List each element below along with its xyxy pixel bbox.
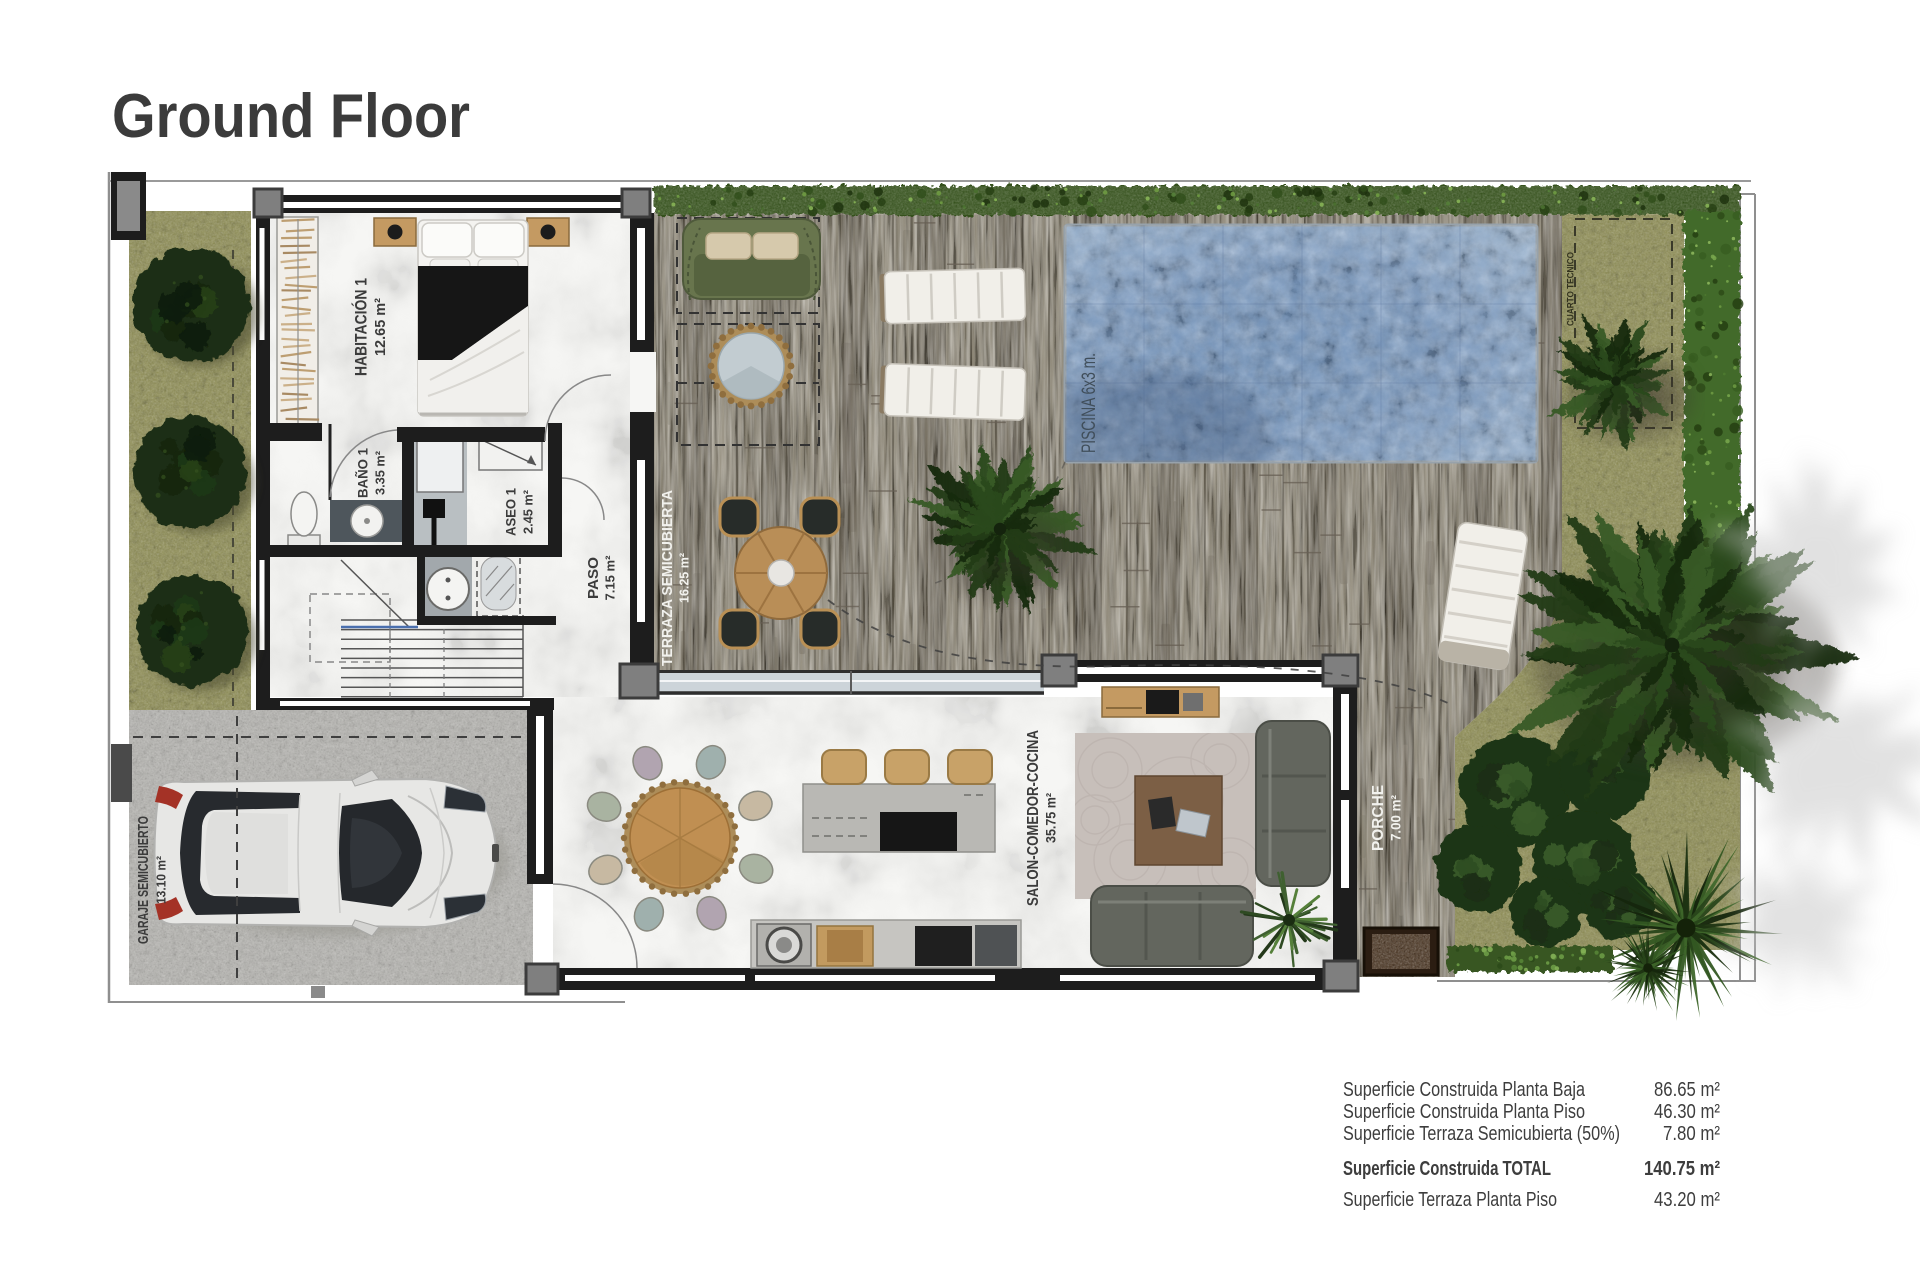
svg-text:PISCINA 6x3 m.: PISCINA 6x3 m.: [1079, 353, 1100, 453]
svg-text:12.65 m²: 12.65 m²: [372, 298, 389, 356]
svg-text:GARAJE SEMICUBIERTO: GARAJE SEMICUBIERTO: [136, 816, 152, 944]
svg-text:46.30 m²: 46.30 m²: [1654, 1101, 1720, 1123]
svg-text:7.15 m²: 7.15 m²: [602, 555, 617, 601]
svg-text:Ground Floor: Ground Floor: [112, 82, 470, 151]
svg-text:140.75 m²: 140.75 m²: [1644, 1158, 1720, 1180]
svg-text:SALON-COMEDOR-COCINA: SALON-COMEDOR-COCINA: [1025, 730, 1042, 906]
svg-text:Superficie Construida Planta P: Superficie Construida Planta Piso: [1343, 1101, 1585, 1123]
svg-text:Superficie Terraza Planta Piso: Superficie Terraza Planta Piso: [1343, 1189, 1557, 1211]
svg-text:43.20 m²: 43.20 m²: [1654, 1189, 1720, 1211]
svg-text:13.10 m²: 13.10 m²: [153, 855, 168, 904]
svg-text:TERRAZA SEMICUBIERTA: TERRAZA SEMICUBIERTA: [660, 490, 676, 666]
svg-text:7.80 m²: 7.80 m²: [1663, 1123, 1720, 1145]
svg-text:2.45 m²: 2.45 m²: [521, 490, 535, 534]
svg-text:7.00 m²: 7.00 m²: [1388, 795, 1404, 841]
svg-text:Superficie Construida Planta B: Superficie Construida Planta Baja: [1343, 1079, 1586, 1101]
svg-text:BAÑO 1: BAÑO 1: [354, 448, 371, 498]
svg-text:HABITACIÓN 1: HABITACIÓN 1: [351, 278, 370, 376]
svg-text:PASO: PASO: [586, 557, 602, 599]
svg-text:Superficie Construida TOTAL: Superficie Construida TOTAL: [1343, 1158, 1551, 1180]
svg-text:35.75 m²: 35.75 m²: [1044, 793, 1059, 843]
svg-text:ASEO 1: ASEO 1: [503, 488, 519, 536]
svg-text:Superficie Terraza Semicubiert: Superficie Terraza Semicubierta (50%): [1343, 1123, 1620, 1145]
svg-text:CUARTO TECNICO: CUARTO TECNICO: [1566, 252, 1577, 326]
svg-text:16.25 m²: 16.25 m²: [676, 552, 691, 603]
svg-text:86.65 m²: 86.65 m²: [1654, 1079, 1720, 1101]
svg-text:3.35 m²: 3.35 m²: [373, 451, 387, 495]
svg-text:PORCHE: PORCHE: [1370, 785, 1387, 851]
